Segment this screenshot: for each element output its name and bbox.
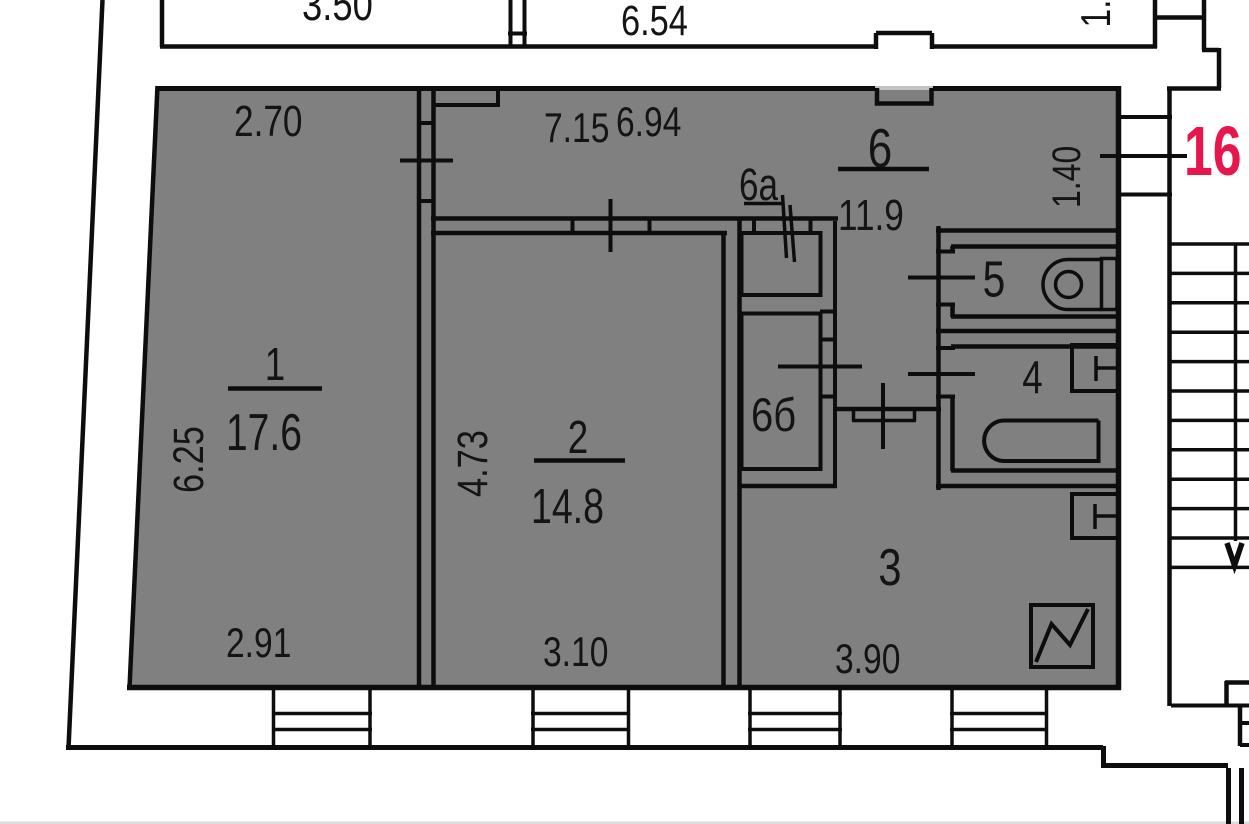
svg-text:2.91: 2.91 — [226, 621, 291, 667]
svg-text:1.: 1. — [1074, 0, 1120, 28]
svg-text:17.6: 17.6 — [226, 402, 302, 461]
svg-text:4: 4 — [1022, 351, 1042, 403]
svg-text:4.73: 4.73 — [449, 430, 496, 497]
svg-text:3.50: 3.50 — [302, 0, 373, 30]
svg-text:3.10: 3.10 — [543, 630, 608, 676]
svg-text:6.25: 6.25 — [165, 426, 212, 493]
svg-text:3.90: 3.90 — [835, 637, 900, 683]
svg-text:2.70: 2.70 — [234, 97, 302, 146]
svg-text:7.15: 7.15 — [544, 106, 609, 152]
svg-text:6: 6 — [868, 117, 892, 179]
svg-text:6.94: 6.94 — [616, 100, 681, 146]
svg-text:2: 2 — [568, 411, 588, 463]
svg-text:16: 16 — [1184, 112, 1242, 190]
svg-text:6б: 6б — [751, 390, 796, 442]
svg-text:1: 1 — [265, 338, 285, 390]
svg-text:6а: 6а — [739, 159, 779, 210]
svg-text:5: 5 — [983, 250, 1006, 307]
svg-text:1.40: 1.40 — [1044, 146, 1089, 208]
svg-text:6.54: 6.54 — [621, 0, 688, 45]
svg-text:11.9: 11.9 — [838, 191, 904, 240]
svg-text:14.8: 14.8 — [531, 480, 604, 534]
svg-text:3: 3 — [878, 538, 901, 597]
